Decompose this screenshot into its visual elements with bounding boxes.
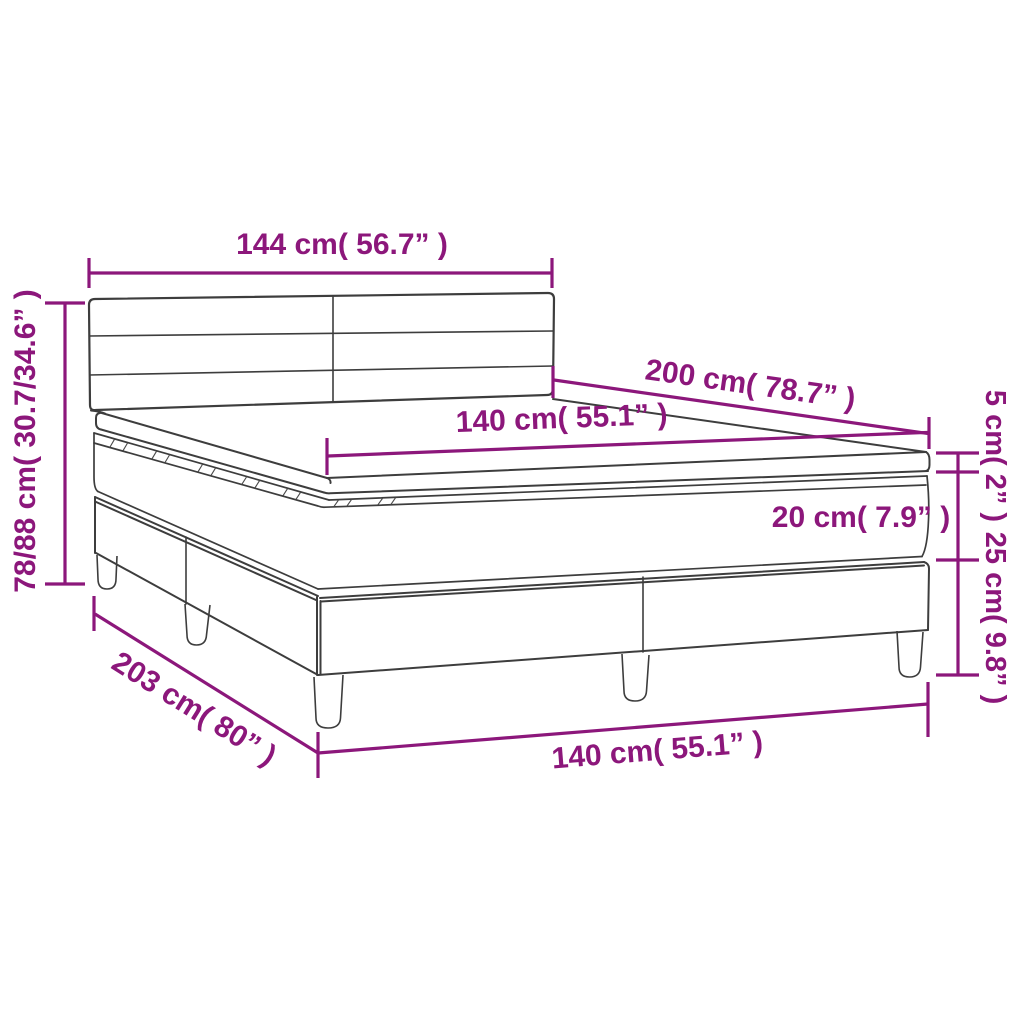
svg-text:144 cm( 56.7” ): 144 cm( 56.7” ) — [236, 228, 448, 261]
svg-text:78/88 cm( 30.7/34.6” ): 78/88 cm( 30.7/34.6” ) — [9, 289, 42, 593]
svg-text:25 cm( 9.8” ): 25 cm( 9.8” ) — [979, 532, 1011, 704]
svg-text:5 cm( 2” ): 5 cm( 2” ) — [979, 390, 1011, 522]
svg-text:20 cm( 7.9” ): 20 cm( 7.9” ) — [772, 501, 950, 534]
